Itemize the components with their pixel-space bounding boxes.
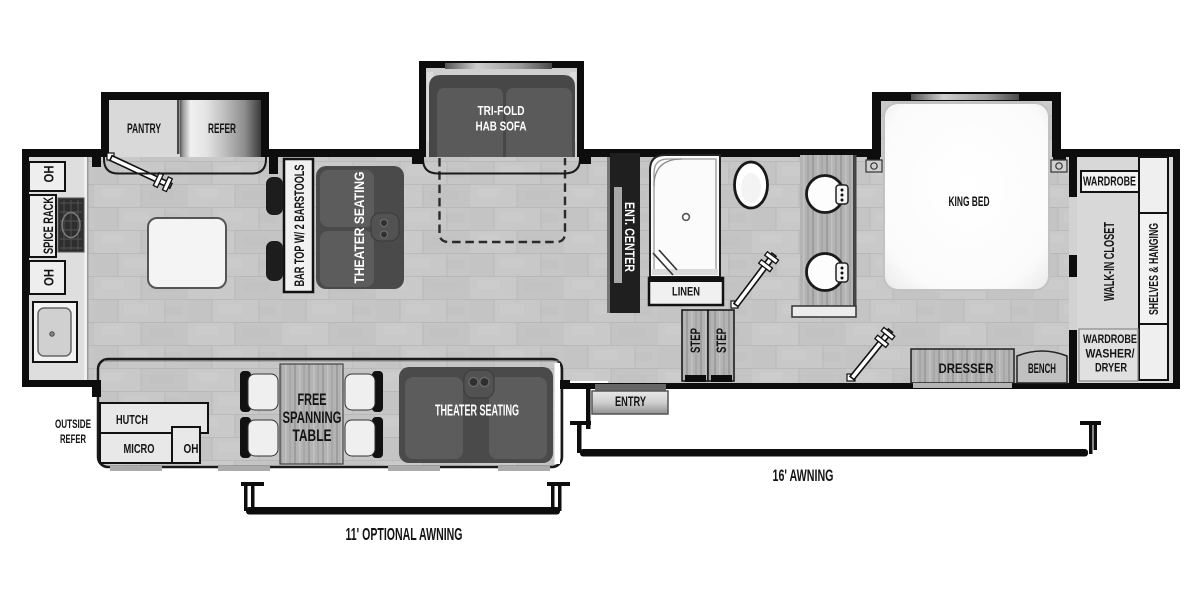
svg-text:HUTCH: HUTCH [116, 412, 148, 427]
svg-text:THEATER SEATING: THEATER SEATING [435, 403, 519, 420]
svg-text:THEATER SEATING: THEATER SEATING [351, 171, 367, 283]
svg-text:TRI-FOLD: TRI-FOLD [478, 104, 525, 118]
svg-text:LINEN: LINEN [672, 287, 700, 299]
svg-text:DRYER: DRYER [1095, 361, 1127, 375]
svg-text:11' OPTIONAL AWNING: 11' OPTIONAL AWNING [346, 524, 463, 544]
svg-text:MICRO: MICRO [124, 441, 155, 456]
svg-text:FREE: FREE [298, 391, 327, 409]
svg-text:OUTSIDE: OUTSIDE [55, 417, 91, 431]
svg-text:BENCH: BENCH [1028, 361, 1056, 376]
svg-text:BAR TOP W/ 2 BARSTOOLS: BAR TOP W/ 2 BARSTOOLS [292, 165, 307, 287]
svg-text:DRESSER: DRESSER [939, 360, 994, 376]
svg-text:REFER: REFER [208, 121, 236, 136]
svg-text:SHELVES & HANGING: SHELVES & HANGING [1146, 223, 1161, 315]
svg-text:REFER: REFER [60, 432, 86, 446]
svg-text:ENTRY: ENTRY [615, 393, 646, 409]
svg-text:PANTRY: PANTRY [127, 121, 161, 136]
svg-text:ENT. CENTER: ENT. CENTER [622, 202, 637, 272]
svg-text:WASHER/: WASHER/ [1086, 347, 1136, 361]
svg-text:WALK-IN CLOSET: WALK-IN CLOSET [1101, 222, 1118, 301]
svg-text:KING BED: KING BED [949, 194, 990, 209]
svg-text:OH: OH [42, 166, 57, 183]
svg-text:WARDROBE: WARDROBE [1083, 332, 1137, 346]
svg-text:STEP: STEP [688, 328, 703, 353]
svg-text:OH: OH [184, 441, 199, 456]
svg-text:WARDROBE: WARDROBE [1083, 175, 1136, 189]
svg-text:OH: OH [42, 269, 57, 286]
svg-text:STEP: STEP [714, 328, 729, 353]
svg-text:HAB SOFA: HAB SOFA [476, 120, 527, 134]
svg-text:TABLE: TABLE [293, 427, 332, 445]
svg-text:SPICE RACK: SPICE RACK [41, 197, 56, 254]
svg-text:SPANNING: SPANNING [283, 409, 342, 427]
svg-text:16' AWNING: 16' AWNING [773, 466, 834, 485]
